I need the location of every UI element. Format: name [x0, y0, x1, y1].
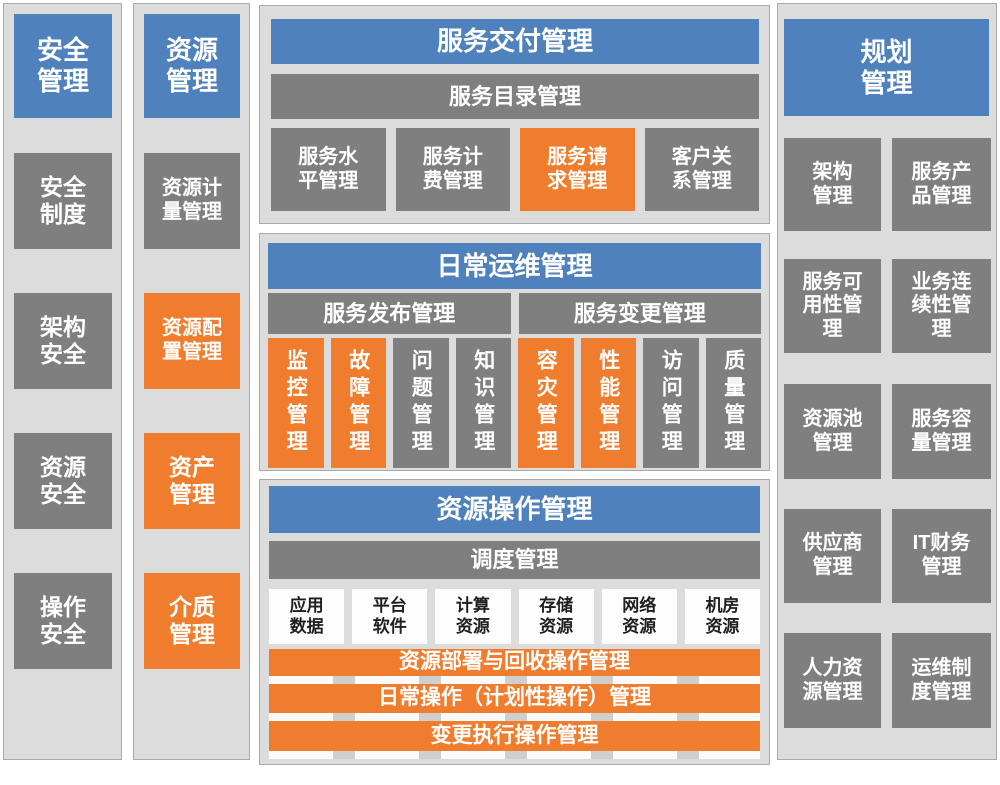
resource-type-box: 机房资源 [685, 589, 760, 644]
planning-item-label: 服务产品管理 [910, 161, 972, 208]
security-column-header: 安全管理 [14, 14, 112, 118]
resource-column-header-label: 资源管理 [164, 35, 220, 96]
resource-type-label: 网络资源 [621, 596, 658, 637]
it-ops-framework-diagram: 安全管理 安全制度 架构安全 资源安全 操作安全 资源管理 资源计量管理 资源配… [0, 0, 1000, 785]
operation-bar: 资源部署与回收操作管理 [269, 649, 760, 676]
resource-type-label: 机房资源 [704, 596, 741, 637]
planning-item: 资源池管理 [784, 384, 881, 479]
security-item-label: 资源安全 [38, 454, 87, 508]
resource-item: 资源配置管理 [144, 293, 240, 389]
resource-ops-title: 资源操作管理 [269, 486, 760, 533]
service-catalog-bar: 服务目录管理 [271, 74, 759, 119]
resource-item-label: 资源计量管理 [161, 177, 223, 224]
resource-type-box: 应用数据 [269, 589, 344, 644]
resource-type-label: 存储资源 [538, 596, 575, 637]
resource-item-label: 介质管理 [167, 594, 216, 648]
service-delivery-panel: 服务交付管理 服务目录管理 服务水平管理 服务计费管理 服务请求管理 客户关系管… [259, 5, 770, 224]
security-item: 操作安全 [14, 573, 112, 669]
resource-type-box: 存储资源 [519, 589, 594, 644]
planning-item: 服务可用性管理 [784, 259, 881, 353]
planning-item: 服务产品管理 [892, 138, 991, 231]
daily-ops-box: 容灾管理 [518, 338, 574, 468]
service-delivery-box: 服务计费管理 [396, 128, 511, 211]
service-delivery-box-row: 服务水平管理 服务计费管理 服务请求管理 客户关系管理 [271, 128, 759, 211]
resource-type-label: 应用数据 [288, 596, 325, 637]
daily-ops-bar-row: 服务发布管理 服务变更管理 [268, 293, 761, 334]
planning-column-header-label: 规划管理 [859, 37, 915, 98]
operation-bar: 变更执行操作管理 [269, 721, 760, 751]
security-column-header-label: 安全管理 [35, 35, 91, 96]
planning-item-label: 服务容量管理 [910, 408, 972, 455]
schedule-bar: 调度管理 [269, 541, 760, 579]
planning-item: 业务连续性管理 [892, 259, 991, 353]
daily-ops-box: 问题管理 [393, 338, 449, 468]
daily-ops-box: 性能管理 [581, 338, 637, 468]
planning-item-label: 资源池管理 [801, 408, 863, 455]
service-delivery-box: 客户关系管理 [645, 128, 760, 211]
grid-gap-row [269, 751, 760, 759]
planning-item: 架构管理 [784, 138, 881, 231]
service-delivery-box-label: 服务计费管理 [422, 146, 484, 193]
resource-type-box: 网络资源 [602, 589, 677, 644]
resource-ops-panel: 资源操作管理 调度管理 应用数据 平台软件 计算资源 存储资源 网络资源 机房资… [259, 479, 770, 765]
service-delivery-title: 服务交付管理 [271, 19, 759, 64]
service-delivery-box: 服务水平管理 [271, 128, 386, 211]
planning-column: 规划管理 架构管理 服务产品管理 服务可用性管理 业务连续性管理 资源池管理 服… [777, 3, 997, 760]
security-item: 资源安全 [14, 433, 112, 529]
security-item-label: 操作安全 [38, 594, 87, 648]
resource-type-label: 平台软件 [371, 596, 408, 637]
resource-item-label: 资产管理 [167, 454, 216, 508]
resource-item: 介质管理 [144, 573, 240, 669]
daily-ops-title: 日常运维管理 [268, 243, 761, 289]
daily-ops-box-row: 监控管理 故障管理 问题管理 知识管理 容灾管理 性能管理 访问管理 质量管理 [268, 338, 761, 468]
daily-ops-bar: 服务变更管理 [519, 293, 762, 334]
daily-ops-box: 访问管理 [643, 338, 699, 468]
security-item-label: 架构安全 [38, 314, 87, 368]
daily-ops-box: 知识管理 [456, 338, 512, 468]
resource-type-box: 平台软件 [352, 589, 427, 644]
service-delivery-box: 服务请求管理 [520, 128, 635, 211]
planning-item: 服务容量管理 [892, 384, 991, 479]
service-delivery-box-label: 客户关系管理 [671, 146, 733, 193]
daily-ops-box: 监控管理 [268, 338, 324, 468]
daily-ops-box: 故障管理 [331, 338, 387, 468]
resource-item-label: 资源配置管理 [161, 317, 223, 364]
security-item: 安全制度 [14, 153, 112, 249]
grid-gap-row [269, 713, 760, 721]
planning-item: 供应商管理 [784, 509, 881, 603]
resource-type-box: 计算资源 [435, 589, 510, 644]
planning-column-header: 规划管理 [784, 19, 989, 116]
planning-item: IT财务管理 [892, 509, 991, 603]
planning-item-label: 架构管理 [811, 161, 854, 208]
resource-column-header: 资源管理 [144, 14, 240, 118]
grid-gap-row [269, 676, 760, 684]
operation-bar: 日常操作（计划性操作）管理 [269, 684, 760, 713]
planning-item-label: 供应商管理 [801, 532, 863, 579]
planning-item-label: IT财务管理 [910, 532, 972, 579]
planning-item-label: 运维制度管理 [910, 657, 972, 704]
service-delivery-box-label: 服务水平管理 [297, 146, 359, 193]
resource-type-row: 应用数据 平台软件 计算资源 存储资源 网络资源 机房资源 [269, 589, 760, 644]
security-column: 安全管理 安全制度 架构安全 资源安全 操作安全 [3, 3, 122, 760]
security-item: 架构安全 [14, 293, 112, 389]
resource-column: 资源管理 资源计量管理 资源配置管理 资产管理 介质管理 [133, 3, 250, 760]
daily-ops-box: 质量管理 [706, 338, 762, 468]
resource-item: 资产管理 [144, 433, 240, 529]
planning-item-label: 服务可用性管理 [801, 271, 863, 342]
planning-item: 人力资源管理 [784, 633, 881, 728]
daily-ops-bar: 服务发布管理 [268, 293, 511, 334]
planning-item-label: 人力资源管理 [801, 657, 863, 704]
resource-type-label: 计算资源 [455, 596, 492, 637]
daily-ops-panel: 日常运维管理 服务发布管理 服务变更管理 监控管理 故障管理 问题管理 知识管理… [259, 233, 770, 471]
security-item-label: 安全制度 [38, 174, 87, 228]
planning-item: 运维制度管理 [892, 633, 991, 728]
resource-item: 资源计量管理 [144, 153, 240, 249]
service-delivery-box-label: 服务请求管理 [546, 146, 608, 193]
planning-item-label: 业务连续性管理 [910, 271, 972, 342]
